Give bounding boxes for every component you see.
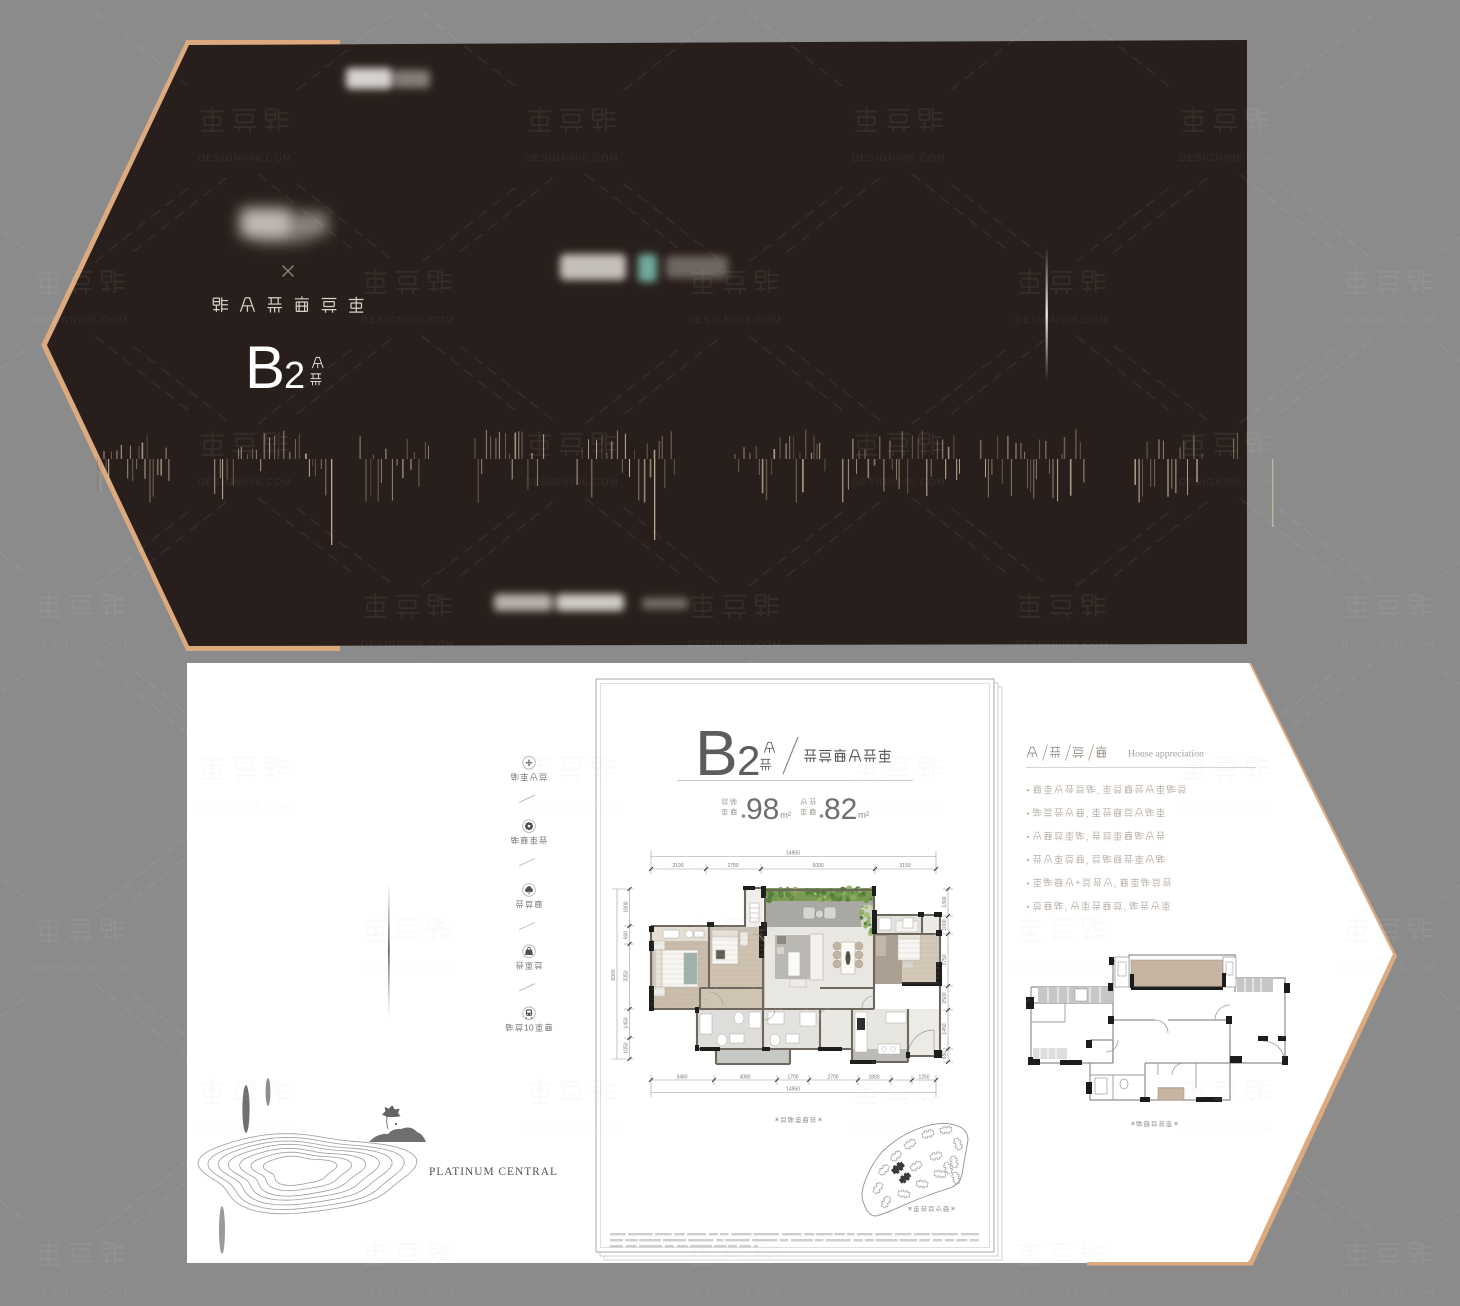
svg-text:1800: 1800 (624, 901, 630, 912)
svg-text:1300: 1300 (942, 896, 948, 907)
svg-text:2: 2 (737, 737, 760, 784)
svg-text:m²: m² (780, 810, 791, 821)
svg-text:2780: 2780 (727, 863, 738, 869)
svg-text:6000: 6000 (812, 863, 823, 869)
svg-text:800: 800 (624, 931, 630, 940)
svg-text:2500: 2500 (942, 992, 948, 1003)
svg-text:,: , (1114, 879, 1117, 889)
svg-text:,: , (1097, 786, 1100, 796)
svg-text:10: 10 (524, 1023, 534, 1033)
svg-text:,: , (1065, 902, 1068, 912)
svg-text:14950: 14950 (786, 1087, 800, 1093)
svg-text:1700: 1700 (787, 1075, 798, 1081)
svg-text:3750: 3750 (942, 954, 948, 965)
svg-text:2700: 2700 (827, 1075, 838, 1081)
svg-text:,: , (1086, 832, 1089, 842)
svg-text:3150: 3150 (899, 863, 910, 869)
svg-text:1250: 1250 (918, 1075, 929, 1081)
svg-text:14950: 14950 (786, 851, 800, 857)
svg-text:3350: 3350 (624, 970, 630, 981)
svg-text:2190: 2190 (672, 863, 683, 869)
svg-text:3480: 3480 (676, 1075, 687, 1081)
svg-text:98: 98 (746, 793, 779, 826)
svg-text:,: , (1086, 809, 1089, 819)
svg-text:1800: 1800 (868, 1075, 879, 1081)
svg-text:2: 2 (284, 355, 305, 397)
svg-text:1000: 1000 (942, 919, 948, 930)
svg-text:,: , (1086, 855, 1089, 865)
svg-text:1450: 1450 (624, 1017, 630, 1028)
svg-text:B: B (245, 334, 285, 401)
svg-text:4080: 4080 (739, 1075, 750, 1081)
svg-text:+: + (1075, 878, 1080, 888)
svg-text:8300: 8300 (611, 969, 617, 980)
svg-text:1450: 1450 (942, 1023, 948, 1034)
svg-text:B: B (695, 717, 738, 789)
svg-text:1050: 1050 (624, 1042, 630, 1053)
svg-text:650: 650 (942, 1051, 948, 1060)
svg-text:,: , (1124, 902, 1127, 912)
